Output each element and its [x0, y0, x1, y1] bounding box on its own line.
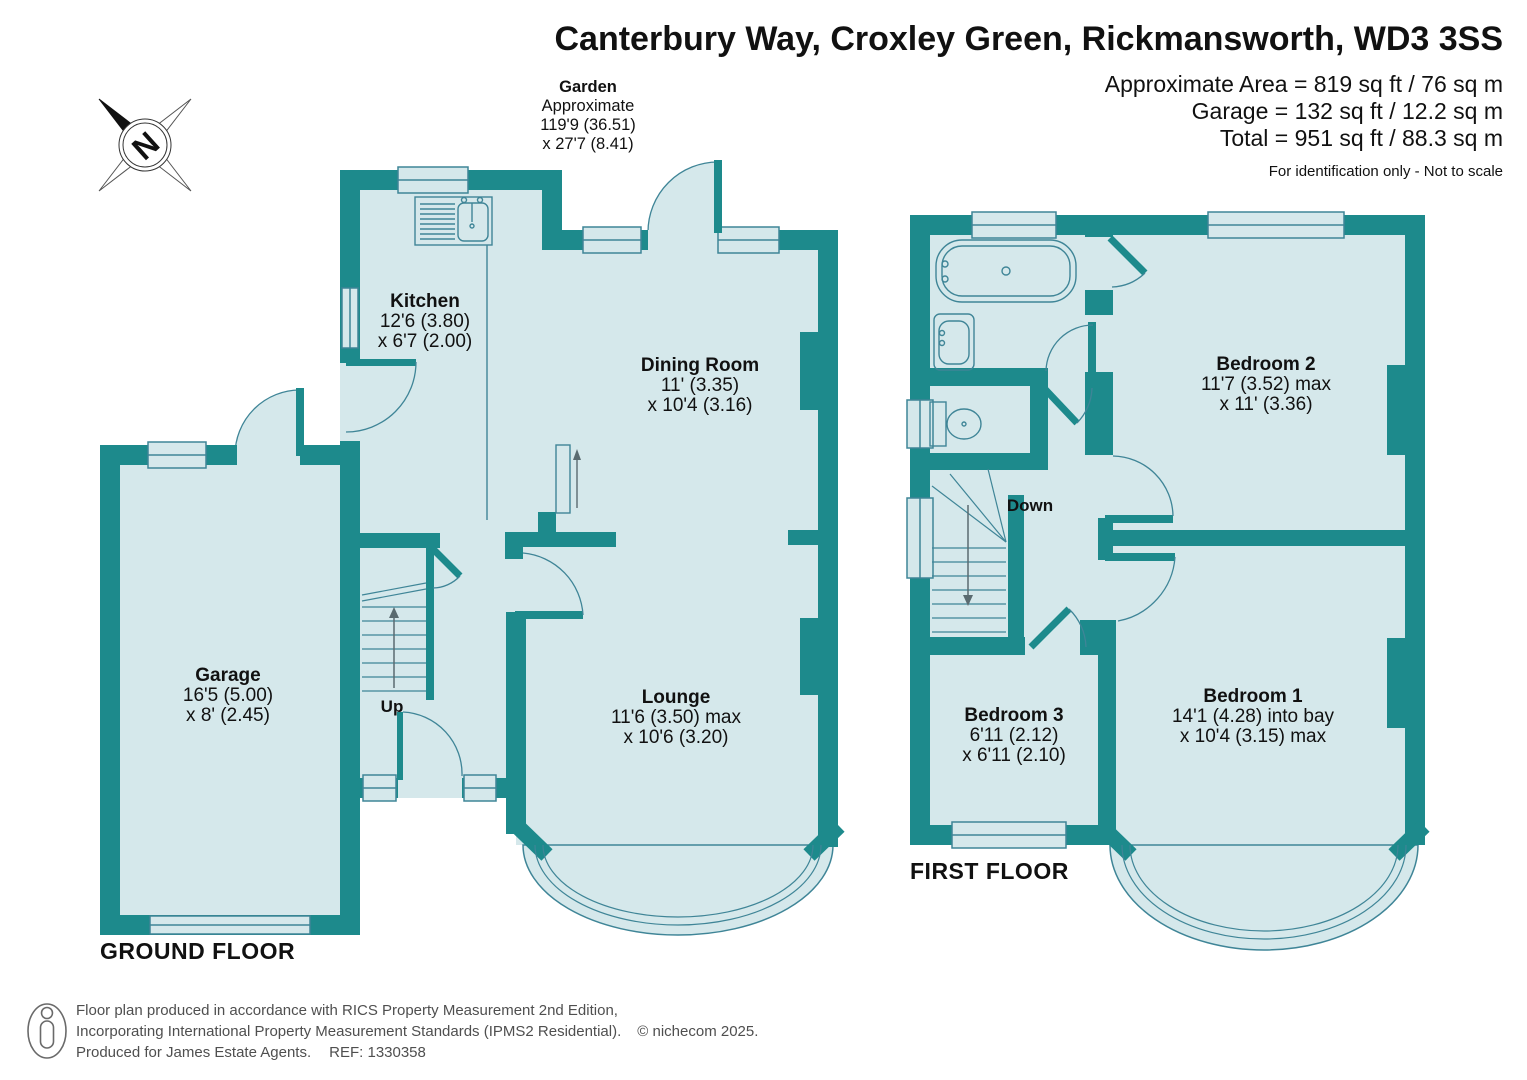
lounge-bay-window [523, 845, 833, 935]
bedroom1-chimney-breast [1387, 638, 1405, 728]
kitchen-label: Kitchen 12'6 (3.80) x 6'7 (2.00) [378, 292, 472, 352]
bedroom1-label: Bedroom 1 14'1 (4.28) into bay x 10'4 (3… [1172, 687, 1334, 747]
footer-note: Floor plan produced in accordance with R… [76, 1000, 758, 1063]
floorplan-page: N [0, 0, 1527, 1080]
nichecom-person-icon [28, 1004, 66, 1058]
garage-label: Garage 16'5 (5.00) x 8' (2.45) [183, 666, 273, 726]
garden-note: Garden Approximate 119'9 (36.51) x 27'7 … [540, 78, 636, 154]
lounge-chimney-breast [800, 618, 818, 695]
bedroom1-door [1105, 553, 1175, 561]
bedroom2-label: Bedroom 2 11'7 (3.52) max x 11' (3.36) [1201, 355, 1331, 415]
bedroom3-label: Bedroom 3 6'11 (2.12) x 6'11 (2.10) [962, 706, 1066, 766]
footer-line3: Produced for James Estate Agents. [76, 1044, 311, 1061]
bedroom1-bay-window [1110, 845, 1418, 950]
footer-line2: Incorporating International Property Mea… [76, 1023, 621, 1040]
dining-garden-door-swing [648, 162, 718, 232]
dining-room-label: Dining Room 11' (3.35) x 10'4 (3.16) [641, 356, 759, 416]
bedroom2-door [1105, 515, 1173, 523]
stairs-up-label: Up [381, 697, 404, 717]
area-summary: Approximate Area = 819 sq ft / 76 sq m G… [1105, 71, 1503, 185]
total-area: Total = 951 sq ft / 88.3 sq m [1105, 125, 1503, 152]
scale-disclaimer: For identification only - Not to scale [1105, 158, 1503, 185]
lounge-label: Lounge 11'6 (3.50) max x 10'6 (3.20) [611, 688, 741, 748]
compass-icon: N [99, 99, 191, 191]
copyright: © nichecom 2025. [637, 1023, 758, 1040]
dining-garden-door [714, 160, 722, 233]
dining-chimney-breast [800, 332, 818, 410]
ground-floor-plan [100, 160, 839, 935]
reference-number: REF: 1330358 [329, 1044, 426, 1061]
garage-area: Garage = 132 sq ft / 12.2 sq m [1105, 98, 1503, 125]
front-door [397, 712, 403, 780]
garage-side-door [296, 388, 304, 456]
stairs-down-label: Down [1007, 496, 1053, 516]
footer-line1: Floor plan produced in accordance with R… [76, 1002, 618, 1019]
bathroom-door [1088, 322, 1096, 372]
first-floor-title: FIRST FLOOR [910, 858, 1069, 885]
ground-room-fills [110, 162, 833, 935]
lounge-door [515, 611, 583, 619]
kitchen-side-door [346, 359, 416, 366]
approximate-area: Approximate Area = 819 sq ft / 76 sq m [1105, 71, 1503, 98]
page-title: Canterbury Way, Croxley Green, Rickmansw… [555, 20, 1504, 59]
bedroom2-chimney-breast [1387, 365, 1405, 455]
first-floor-plan [907, 212, 1425, 950]
ground-floor-title: GROUND FLOOR [100, 938, 295, 965]
